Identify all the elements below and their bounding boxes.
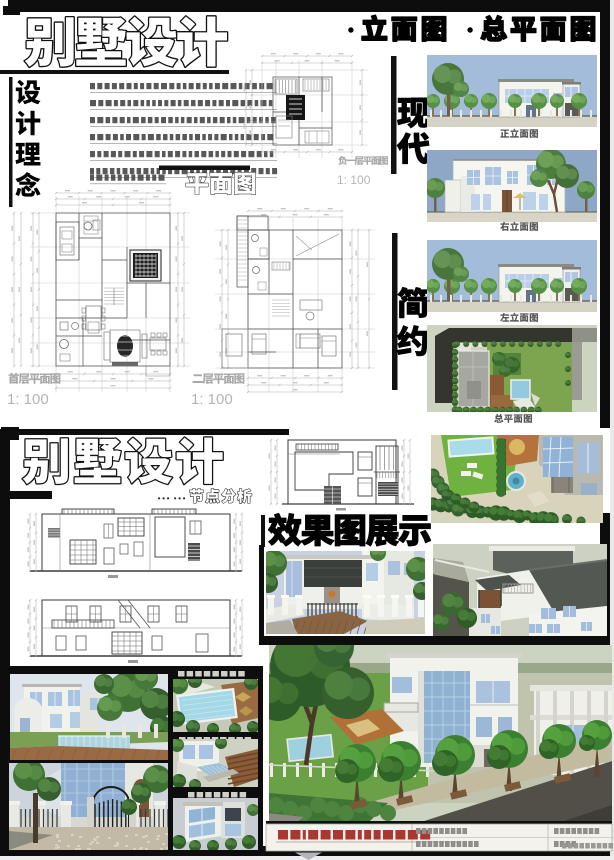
svg-text:1: 100: 1: 100 [337, 173, 371, 187]
svg-text:1: 100: 1: 100 [7, 391, 49, 408]
svg-text:1: 100: 1: 100 [191, 391, 233, 408]
